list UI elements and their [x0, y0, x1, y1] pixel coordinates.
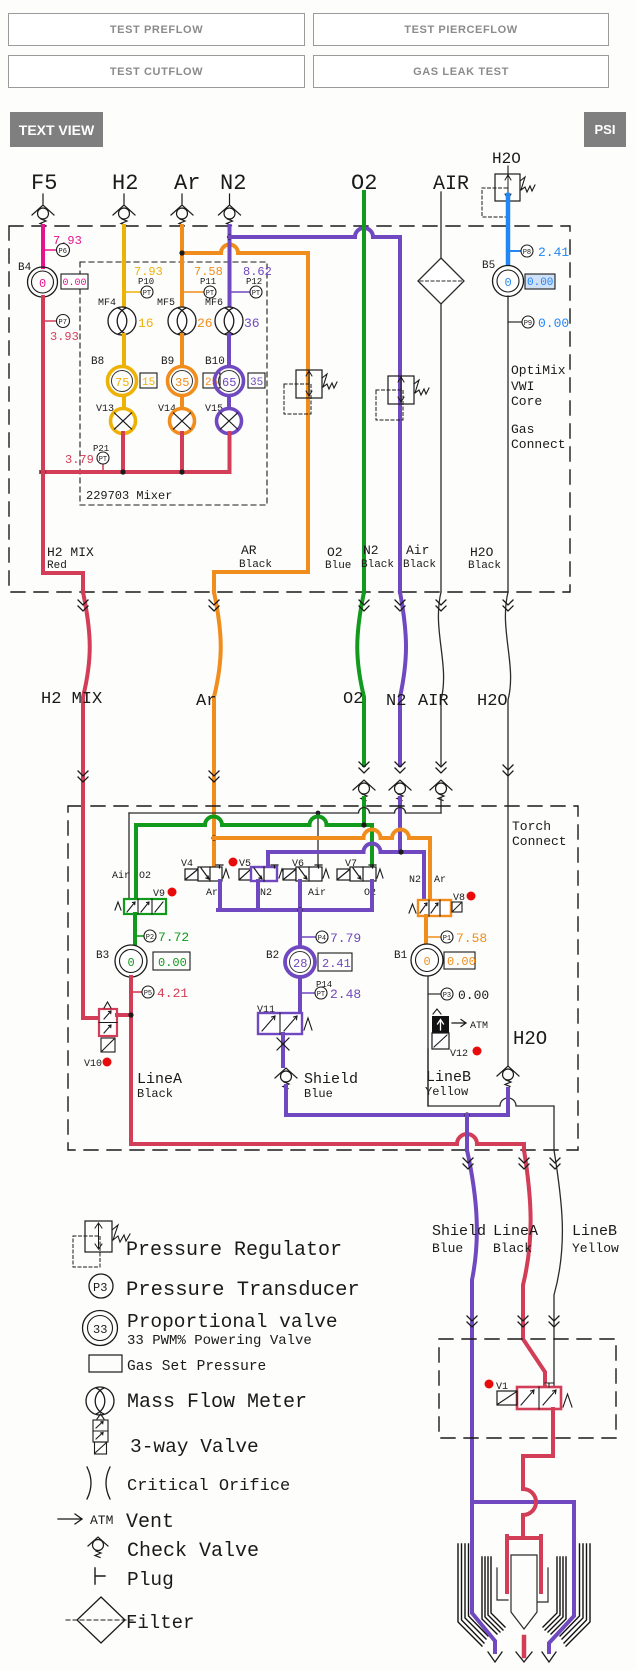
svg-text:229703 Mixer: 229703 Mixer — [86, 489, 172, 503]
svg-text:PT: PT — [143, 290, 151, 298]
svg-text:P8: P8 — [523, 249, 531, 257]
svg-text:PT: PT — [317, 991, 325, 999]
svg-text:H2O: H2O — [492, 150, 521, 168]
svg-text:V12: V12 — [450, 1049, 468, 1060]
svg-text:Air: Air — [112, 870, 130, 882]
svg-text:7.58: 7.58 — [456, 931, 487, 946]
svg-text:B3: B3 — [96, 950, 109, 962]
svg-text:V10: V10 — [84, 1059, 102, 1070]
svg-text:0: 0 — [39, 277, 46, 291]
svg-text:Mass Flow Meter: Mass Flow Meter — [127, 1391, 307, 1414]
svg-text:H2O: H2O — [477, 692, 508, 711]
svg-text:7.72: 7.72 — [158, 930, 189, 945]
svg-text:Plug: Plug — [127, 1569, 174, 1591]
svg-text:B2: B2 — [266, 950, 279, 962]
svg-text:V4: V4 — [181, 859, 193, 870]
svg-text:0.00: 0.00 — [447, 955, 476, 969]
svg-text:Gas: Gas — [511, 422, 534, 437]
svg-text:H2O: H2O — [470, 545, 494, 560]
svg-text:N2: N2 — [409, 875, 421, 886]
svg-text:Torch: Torch — [512, 819, 551, 834]
svg-text:F5: F5 — [31, 171, 57, 196]
svg-text:0: 0 — [128, 956, 135, 970]
svg-text:Shield: Shield — [432, 1223, 486, 1240]
svg-text:Black: Black — [137, 1087, 173, 1101]
svg-text:O2: O2 — [139, 871, 151, 882]
svg-text:P6: P6 — [59, 248, 67, 256]
svg-text:2.41: 2.41 — [538, 245, 569, 260]
svg-text:ATM: ATM — [470, 1021, 488, 1032]
svg-text:Black: Black — [239, 559, 272, 571]
svg-text:N2: N2 — [363, 543, 379, 558]
svg-text:H2 MIX: H2 MIX — [47, 545, 94, 560]
svg-text:B1: B1 — [394, 950, 408, 962]
svg-text:P9: P9 — [524, 320, 532, 328]
svg-text:VWI: VWI — [511, 379, 534, 394]
svg-text:Gas Set Pressure: Gas Set Pressure — [127, 1359, 266, 1375]
svg-text:N2: N2 — [386, 692, 406, 711]
svg-text:Connect: Connect — [512, 834, 567, 849]
svg-text:0.00: 0.00 — [538, 316, 569, 331]
svg-text:0: 0 — [424, 955, 431, 969]
svg-text:P5: P5 — [144, 990, 152, 998]
svg-text:26: 26 — [197, 316, 213, 331]
svg-text:Ar: Ar — [196, 692, 216, 711]
svg-text:75: 75 — [115, 376, 129, 390]
svg-text:Proportional valve: Proportional valve — [127, 1311, 338, 1333]
svg-text:H2O: H2O — [513, 1028, 547, 1050]
svg-text:OptiMix: OptiMix — [511, 363, 566, 378]
svg-text:Black: Black — [361, 559, 394, 571]
svg-text:35: 35 — [250, 377, 263, 389]
svg-text:AIR: AIR — [433, 173, 469, 196]
svg-text:Vent: Vent — [126, 1511, 174, 1534]
svg-text:N2: N2 — [220, 171, 246, 196]
svg-text:Check Valve: Check Valve — [127, 1540, 259, 1563]
svg-text:2.48: 2.48 — [330, 987, 361, 1002]
svg-text:AR: AR — [241, 543, 257, 558]
svg-text:Black: Black — [493, 1241, 532, 1256]
svg-text:P7: P7 — [59, 319, 67, 327]
svg-text:33 PWM% Powering Valve: 33 PWM% Powering Valve — [127, 1333, 312, 1349]
svg-text:35: 35 — [175, 376, 189, 390]
svg-text:Ar: Ar — [206, 888, 218, 899]
svg-text:ATM: ATM — [90, 1513, 113, 1528]
svg-text:PT: PT — [252, 290, 260, 298]
svg-text:P11: P11 — [200, 277, 216, 287]
svg-text:3.79: 3.79 — [65, 453, 94, 467]
svg-text:B8: B8 — [91, 356, 104, 368]
svg-text:P3: P3 — [443, 992, 451, 1000]
svg-text:Yellow: Yellow — [572, 1241, 619, 1256]
svg-text:P2: P2 — [146, 934, 154, 942]
svg-text:MF4: MF4 — [98, 298, 116, 309]
svg-text:4.21: 4.21 — [157, 986, 188, 1001]
svg-text:V5: V5 — [239, 859, 251, 870]
svg-text:P12: P12 — [246, 277, 262, 287]
svg-text:B9: B9 — [161, 356, 174, 368]
svg-text:H2 MIX: H2 MIX — [41, 690, 102, 709]
svg-text:Air: Air — [308, 887, 326, 899]
svg-text:LineB: LineB — [572, 1223, 617, 1240]
svg-text:33: 33 — [93, 1323, 107, 1337]
svg-text:Critical Orifice: Critical Orifice — [127, 1477, 290, 1496]
svg-text:Black: Black — [468, 560, 501, 572]
svg-text:36: 36 — [244, 316, 260, 331]
svg-text:28: 28 — [293, 957, 307, 971]
svg-text:Pressure Transducer: Pressure Transducer — [126, 1279, 360, 1302]
svg-text:Core: Core — [511, 394, 542, 409]
svg-text:LineB: LineB — [426, 1069, 471, 1086]
svg-text:AIR: AIR — [418, 692, 449, 711]
svg-text:LineA: LineA — [493, 1223, 538, 1240]
svg-text:O2: O2 — [343, 690, 363, 709]
svg-text:Blue: Blue — [325, 560, 351, 572]
svg-text:Air: Air — [406, 543, 429, 558]
svg-text:Blue: Blue — [304, 1087, 333, 1101]
svg-text:Blue: Blue — [432, 1241, 463, 1256]
svg-text:P4: P4 — [318, 935, 326, 943]
svg-text:0.00: 0.00 — [158, 956, 187, 970]
svg-text:Ar: Ar — [174, 171, 200, 196]
svg-text:Ar: Ar — [434, 875, 446, 886]
svg-text:0: 0 — [505, 276, 512, 290]
svg-text:Filter: Filter — [126, 1612, 194, 1634]
svg-text:B4: B4 — [18, 262, 32, 274]
svg-text:7.79: 7.79 — [330, 931, 361, 946]
svg-text:P10: P10 — [138, 277, 154, 287]
svg-text:Pressure Regulator: Pressure Regulator — [126, 1239, 342, 1262]
svg-text:Yellow: Yellow — [425, 1085, 469, 1099]
svg-text:Shield: Shield — [304, 1071, 358, 1088]
svg-text:65: 65 — [222, 376, 236, 390]
svg-text:Black: Black — [403, 559, 436, 571]
svg-text:P3: P3 — [93, 1281, 107, 1295]
svg-text:B10: B10 — [205, 356, 225, 368]
svg-text:B5: B5 — [482, 260, 495, 272]
svg-text:H2: H2 — [112, 171, 138, 196]
svg-text:15: 15 — [142, 377, 155, 389]
svg-text:0.00: 0.00 — [458, 988, 489, 1003]
svg-text:LineA: LineA — [137, 1071, 182, 1088]
svg-text:0.00: 0.00 — [527, 277, 553, 289]
svg-text:N2: N2 — [260, 888, 272, 899]
svg-text:Connect: Connect — [511, 437, 566, 452]
svg-text:PT: PT — [99, 456, 107, 464]
svg-text:PT: PT — [206, 290, 214, 298]
svg-text:P1: P1 — [443, 935, 451, 943]
svg-text:MF6: MF6 — [205, 298, 223, 309]
svg-text:3-way Valve: 3-way Valve — [130, 1436, 259, 1458]
svg-text:0.00: 0.00 — [63, 278, 87, 289]
svg-text:MF5: MF5 — [157, 298, 175, 309]
svg-text:16: 16 — [138, 316, 154, 331]
svg-text:2.41: 2.41 — [322, 957, 351, 971]
svg-text:3.93: 3.93 — [50, 330, 79, 344]
svg-text:Red: Red — [47, 560, 67, 572]
svg-text:O2: O2 — [327, 545, 343, 560]
